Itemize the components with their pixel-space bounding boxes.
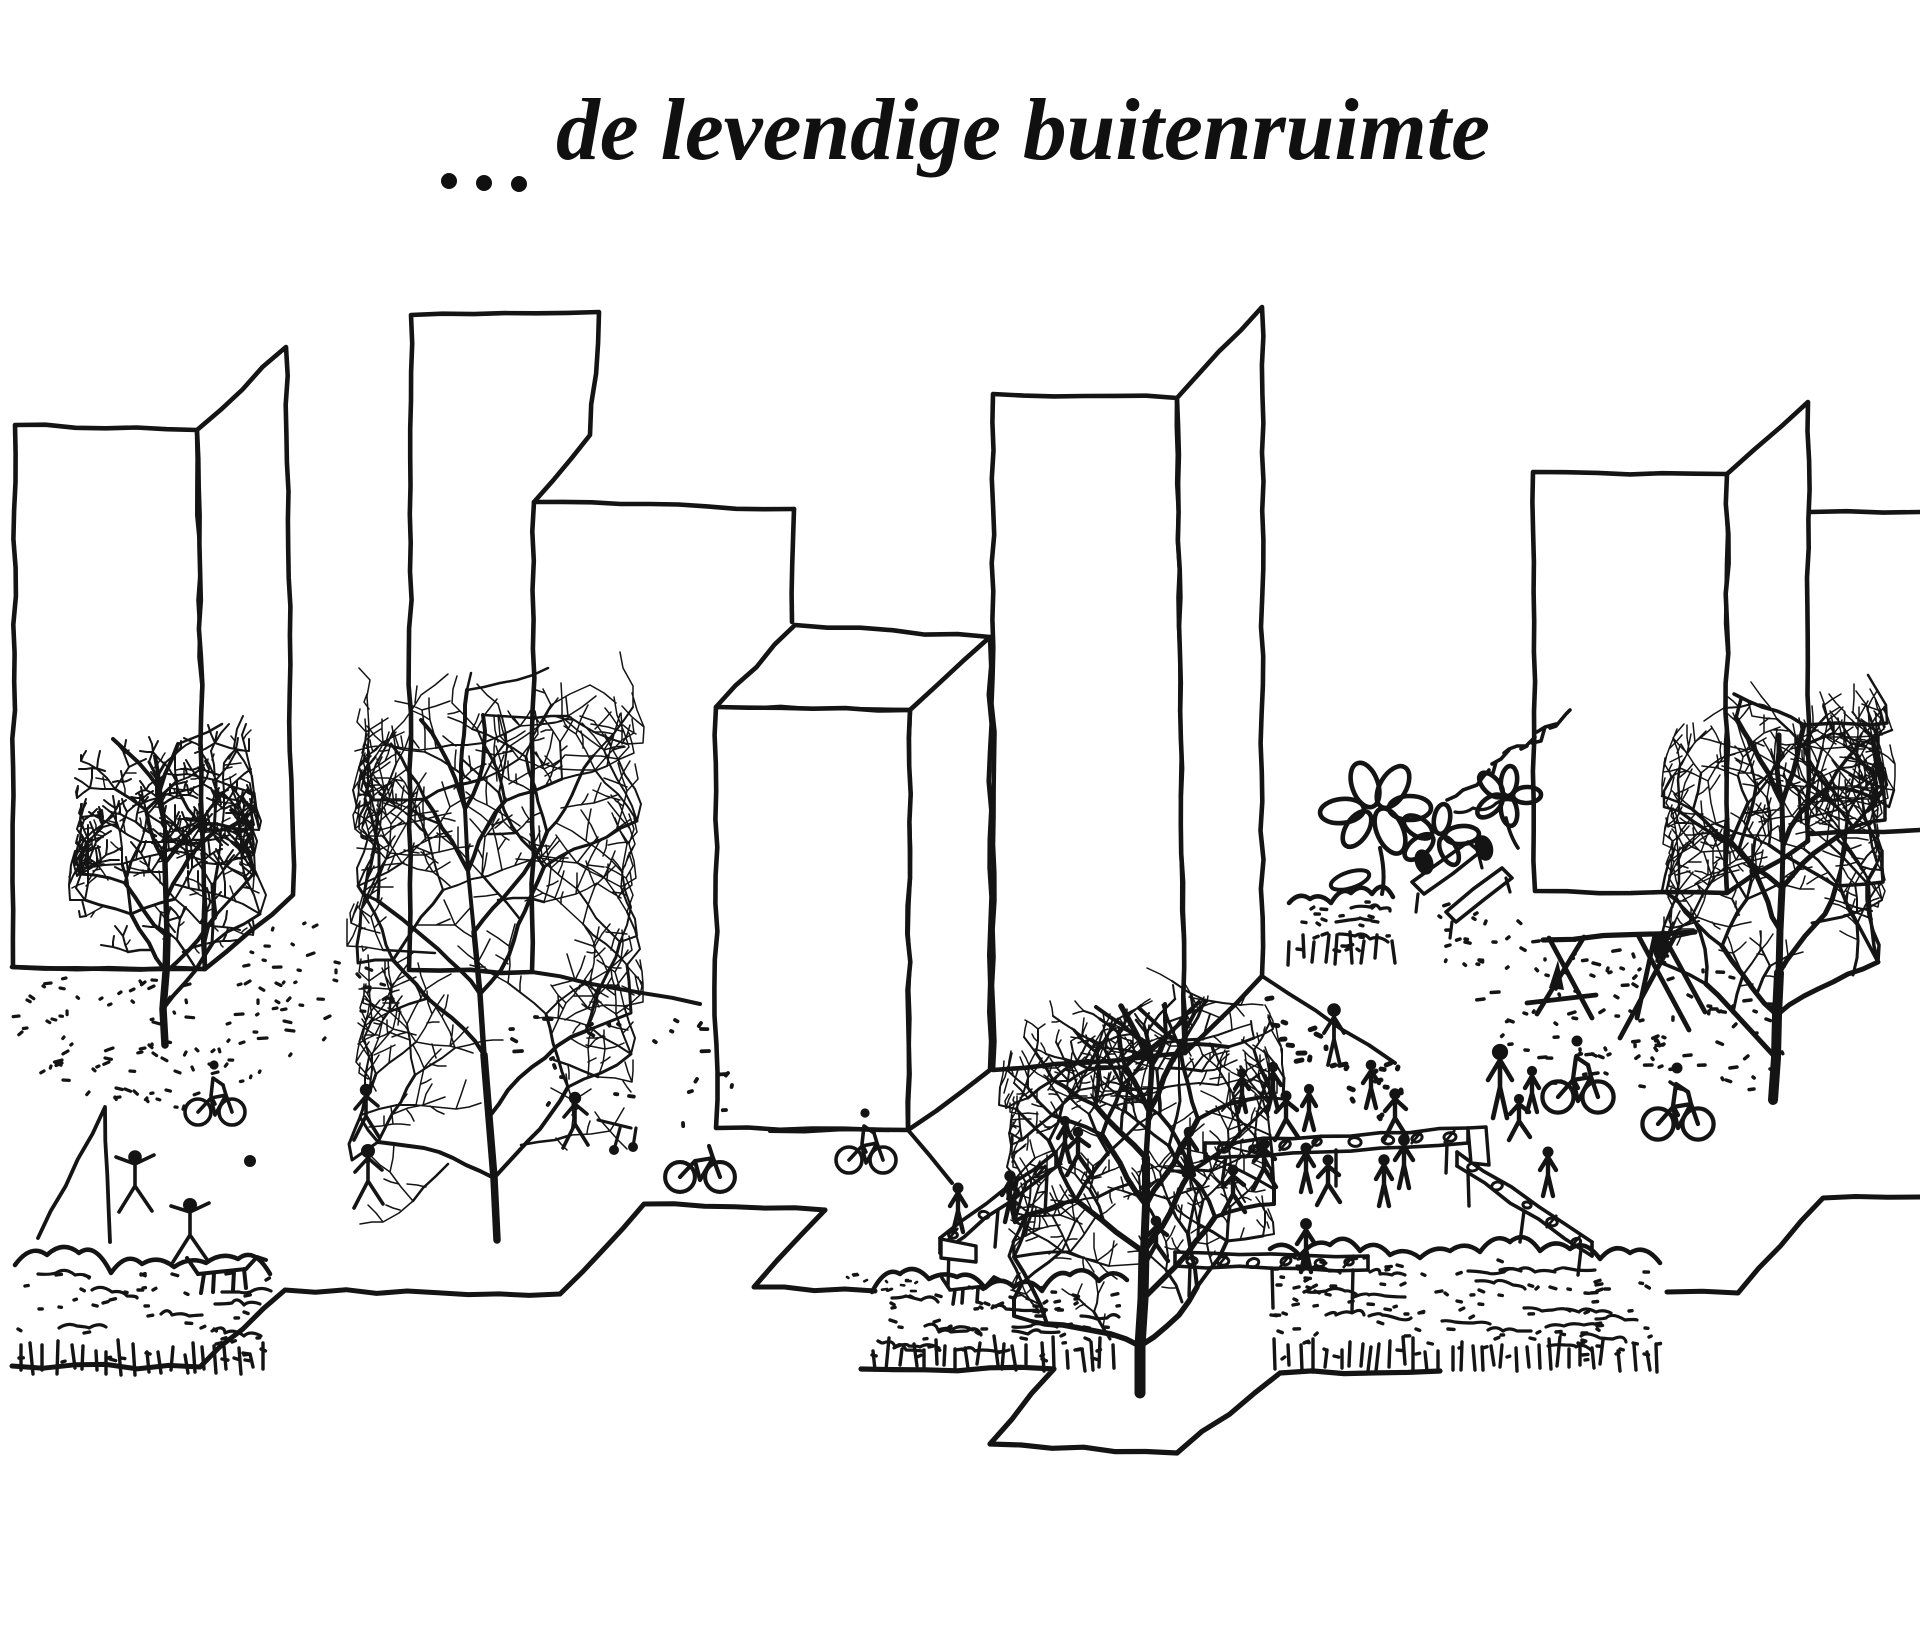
svg-text:de levendige buitenruimte: de levendige buitenruimte bbox=[556, 82, 1490, 179]
